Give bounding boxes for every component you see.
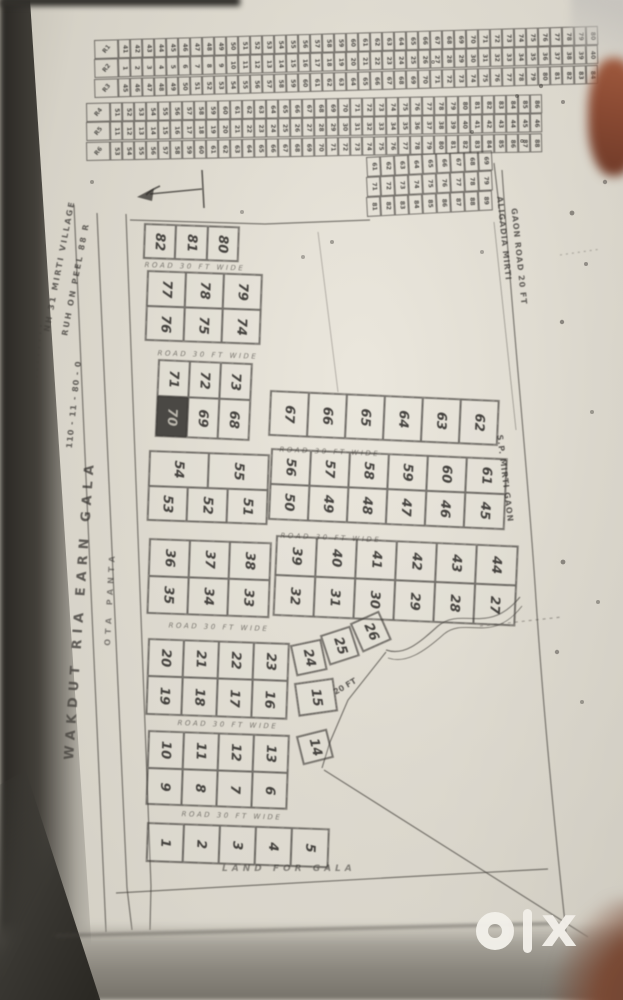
strip-cell: 51 <box>110 102 122 122</box>
strip-cell: 57 <box>262 74 275 94</box>
strip-cell: 66 <box>290 99 302 119</box>
strip-cell: 78 <box>514 67 527 87</box>
north-arrow-icon <box>137 170 204 208</box>
strip-cell: 22 <box>242 119 254 139</box>
strip-cell: 21 <box>230 119 242 139</box>
strip-cell: 69 <box>478 150 493 171</box>
plot-cell-22: 22 <box>218 641 254 679</box>
strip-cell: 86 <box>506 133 518 153</box>
strip-cell: 10 <box>226 55 239 75</box>
plot-cell-53: 53 <box>148 486 188 521</box>
strip-cell: 8 <box>202 56 215 76</box>
strip-cell: 69 <box>302 137 314 157</box>
strip-cell: 28 <box>314 118 326 138</box>
strip-cell: 78 <box>434 96 446 116</box>
strip-cell: 45 <box>118 78 131 98</box>
strip-cell: 79 <box>526 66 539 86</box>
plot-cell-31: 31 <box>314 577 356 619</box>
strip-cell: 15 <box>286 54 299 74</box>
strip-cell: 84 <box>506 95 518 115</box>
plot-cell-80: 80 <box>207 226 239 261</box>
strip-cell: 7 <box>190 56 203 76</box>
strip-cell: 36 <box>538 47 551 67</box>
strip-cell: 23 <box>382 51 395 71</box>
plot-cell-54: 54 <box>149 451 209 488</box>
plot-cell-82: 82 <box>144 224 176 259</box>
plot-cell-76: 76 <box>146 306 185 341</box>
strip-cell: 70 <box>418 69 431 89</box>
plot-block-block-74-79: 777879767574 <box>146 271 262 344</box>
strip-cell: 67 <box>278 138 290 158</box>
strip-cell: 5 <box>166 57 179 77</box>
strip-cell: 51 <box>190 76 203 96</box>
plot-block-block-33-38: 363738353433 <box>147 539 271 617</box>
strip-cell: 52 <box>202 75 215 95</box>
strip-cell: 67 <box>450 152 465 173</box>
strip-cell: 13 <box>262 54 275 74</box>
plot-cell-33: 33 <box>227 579 269 617</box>
strip-cell: 49 <box>214 36 227 56</box>
strip-cell: 64 <box>394 31 407 51</box>
plot-cell-66: 66 <box>307 393 347 439</box>
strip-row-label: R3 <box>94 78 119 98</box>
strip-cell: 35 <box>526 47 539 67</box>
strip-cell: 63 <box>254 100 266 120</box>
strip-cell: 55 <box>238 74 251 94</box>
strip-cell: 24 <box>394 51 407 71</box>
strip-cell: 80 <box>434 135 446 155</box>
plot-cell-69: 69 <box>187 397 220 438</box>
strip-cell: 33 <box>374 117 386 137</box>
plot-block-block-16-23: 2021222319181716 <box>146 639 289 719</box>
strip-cell: 46 <box>130 77 143 97</box>
strip-cell: 64 <box>346 71 359 91</box>
plot-cell-7: 7 <box>216 770 252 807</box>
plot-block-row-82-80: 828180 <box>144 224 239 261</box>
finger-blur-top <box>588 58 623 176</box>
strip-cell: 76 <box>436 173 451 194</box>
plot-cell-34: 34 <box>187 577 228 615</box>
strip-cell: 63 <box>334 72 347 92</box>
strip-cell: 80 <box>458 96 470 116</box>
plot-cell-9: 9 <box>146 768 182 805</box>
strip-cell: 65 <box>278 99 290 119</box>
strip-cell: 68 <box>464 151 479 172</box>
strip-cell: 76 <box>386 136 398 156</box>
strip-cell: 37 <box>422 116 434 136</box>
strip-cell: 87 <box>450 192 465 213</box>
strip-cell: 48 <box>202 37 215 57</box>
strip-cell: 60 <box>346 33 359 53</box>
strip-cell: 81 <box>470 95 482 115</box>
strip-cell: 79 <box>478 170 493 191</box>
plot-cell-72: 72 <box>188 361 221 398</box>
strip-cell: 21 <box>358 52 371 72</box>
strip-cell: 30 <box>466 49 479 69</box>
strip-cell: 11 <box>110 122 122 142</box>
strip-cell: 42 <box>130 39 143 59</box>
plot-block-plot-24: 24 <box>291 640 327 676</box>
strip-cell: 75 <box>422 173 437 194</box>
strip-cell: 85 <box>422 193 437 214</box>
photocopy-specks <box>0 0 2 2</box>
plot-cell-6: 6 <box>251 772 287 809</box>
plot-cell-45: 45 <box>464 492 505 529</box>
strip-cell: 64 <box>266 99 278 119</box>
strip-cell: 77 <box>550 27 563 47</box>
plot-cell-70: 70 <box>156 396 189 437</box>
strip-cell: 43 <box>494 114 506 134</box>
strip-cell: 30 <box>338 117 350 137</box>
strip-cell: 80 <box>538 66 551 86</box>
strip-cell: 9 <box>214 56 227 76</box>
plot-cell-50: 50 <box>269 484 309 521</box>
strip-cell: 78 <box>410 135 422 155</box>
strip-cell: 34 <box>514 47 527 67</box>
plot-cell-52: 52 <box>187 487 228 522</box>
strip-cell: 67 <box>302 99 314 119</box>
strip-cell: 65 <box>254 138 266 158</box>
strip-cell: 68 <box>394 70 407 90</box>
plot-cell-35: 35 <box>147 576 188 614</box>
plot-cell-78: 78 <box>185 272 224 308</box>
plot-cell-5: 5 <box>291 828 329 867</box>
plot-cell-73: 73 <box>219 363 252 400</box>
strip-cell: 86 <box>530 94 542 114</box>
strip-cell: 72 <box>442 69 455 89</box>
strip-cell: 79 <box>422 135 434 155</box>
plot-cell-65: 65 <box>345 394 385 440</box>
strip-cell: 46 <box>178 37 191 57</box>
strip-cell: 77 <box>398 135 410 155</box>
strip-cell: 35 <box>398 116 410 136</box>
strip-cell: 71 <box>430 69 443 89</box>
strip-cell: 73 <box>374 97 386 117</box>
strip-cell: 72 <box>490 29 503 49</box>
strip-cell: 77 <box>502 67 515 87</box>
strip-cell: 76 <box>538 27 551 47</box>
strip-cell: 74 <box>466 68 479 88</box>
strip-cell: 55 <box>134 140 146 160</box>
strip-cell: 71 <box>366 176 381 197</box>
strip-cell: 41 <box>470 115 482 135</box>
strip-row-label: R1 <box>94 39 119 59</box>
strip-cell: 78 <box>464 171 479 192</box>
strip-cell: 44 <box>154 38 167 58</box>
plot-cell-79: 79 <box>223 274 262 310</box>
strip-cell: 73 <box>454 68 467 88</box>
strip-cell: 32 <box>362 117 374 137</box>
strip-cell: 73 <box>350 136 362 156</box>
strip-cell: 62 <box>370 32 383 52</box>
strip-cell: 72 <box>362 97 374 117</box>
strip-cell: 79 <box>446 96 458 116</box>
plot-cell-1: 1 <box>147 823 184 862</box>
strip-cell: 74 <box>514 28 527 48</box>
strip-cell: 49 <box>166 76 179 96</box>
strip-cell: 83 <box>394 195 409 216</box>
strip-cell: 26 <box>418 50 431 70</box>
strip-cell: 58 <box>194 101 206 121</box>
strip-cell: 2 <box>130 58 143 78</box>
plot-block-row-1-5: 12345 <box>147 823 329 867</box>
strip-cell: 57 <box>158 140 170 160</box>
strip-cell: 75 <box>374 136 386 156</box>
strip-cell: 71 <box>350 98 362 118</box>
plot-block-block-51-55: 5455535251 <box>148 451 269 524</box>
plot-cell-24: 24 <box>291 640 327 676</box>
strip-cell: 38 <box>434 115 446 135</box>
plot-cell-77: 77 <box>147 271 186 307</box>
strip-cell: 14 <box>146 121 158 141</box>
strip-cell: 85 <box>494 134 506 154</box>
plot-cell-10: 10 <box>148 731 184 769</box>
strip-cell: 84 <box>408 194 423 215</box>
strip-cell: 45 <box>166 38 179 58</box>
strip-cell: 18 <box>194 120 206 140</box>
strip-cell: 52 <box>250 35 263 55</box>
strip-cell: 1 <box>118 58 131 78</box>
plot-cell-71: 71 <box>157 360 190 397</box>
plot-block-block-68-73: 717273706968 <box>156 360 252 440</box>
strip-cell: 83 <box>494 95 506 115</box>
strip-cell: 61 <box>206 139 218 159</box>
strip-cell: 24 <box>266 119 278 139</box>
strip-cell: 27 <box>302 118 314 138</box>
strip-cell: 48 <box>154 77 167 97</box>
plot-cell-21: 21 <box>183 640 219 678</box>
plot-cell-23: 23 <box>253 643 289 681</box>
strip-cell: 62 <box>242 100 254 120</box>
strip-cell: 66 <box>370 71 383 91</box>
strip-cell: 62 <box>380 156 395 177</box>
strip-cell: 36 <box>410 116 422 136</box>
strip-cell: 44 <box>506 114 518 134</box>
strip-cell: 61 <box>366 156 381 177</box>
strip-cell: 88 <box>464 191 479 212</box>
strip-cell: 62 <box>218 139 230 159</box>
strip-cell: 43 <box>142 38 155 58</box>
site-plan-drawing: R141424344454647484950515253545556575859… <box>0 0 623 1000</box>
plot-cell-38: 38 <box>229 542 271 580</box>
strip-cell: 87 <box>518 133 530 153</box>
strip-cell: 81 <box>550 66 563 86</box>
strip-cell: 61 <box>358 32 371 52</box>
strip-cell: 47 <box>142 77 155 97</box>
strip-cell: 37 <box>550 46 563 66</box>
strip-cell: 29 <box>454 49 467 69</box>
strip-cell: 45 <box>518 114 530 134</box>
strip-cell: 19 <box>334 52 347 72</box>
strip-cell: 74 <box>386 97 398 117</box>
plot-cell-16: 16 <box>251 680 287 719</box>
strip-cell: 71 <box>326 137 338 157</box>
plot-cell-37: 37 <box>189 540 230 578</box>
strip-cell: 59 <box>206 100 218 120</box>
strip-cell: 20 <box>346 52 359 72</box>
strip-cell: 22 <box>370 51 383 71</box>
strip-cell: 69 <box>454 30 467 50</box>
plot-cell-64: 64 <box>383 396 423 442</box>
strip-cell: 76 <box>410 97 422 117</box>
plot-cell-3: 3 <box>219 826 256 865</box>
strip-cell: 56 <box>170 101 182 121</box>
strip-cell: 67 <box>430 30 443 50</box>
strip-cell: 3 <box>142 58 155 78</box>
strip-cell: 39 <box>446 115 458 135</box>
strip-cell: 53 <box>262 35 275 55</box>
strip-cell: 61 <box>310 72 323 92</box>
strip-cell: 59 <box>286 73 299 93</box>
photo-edge-shadow-top <box>0 0 240 6</box>
strip-cell: 69 <box>406 70 419 90</box>
strip-cell: 81 <box>366 196 381 217</box>
strip-cell: 66 <box>266 138 278 158</box>
strip-cell: 65 <box>358 71 371 91</box>
strip-cell: 65 <box>422 153 437 174</box>
strip-row-label: R2 <box>94 59 119 79</box>
strip-cell: 57 <box>310 34 323 54</box>
strip-cell: 56 <box>250 74 263 94</box>
strip-row-label: R4 <box>86 103 110 123</box>
strip-cell: 65 <box>406 31 419 51</box>
strip-cell: 68 <box>442 30 455 50</box>
strip-cell: 89 <box>478 190 493 211</box>
strip-cell: 66 <box>418 31 431 51</box>
strip-row-label: R5 <box>86 122 110 142</box>
strip-cell: 88 <box>530 133 542 153</box>
plot-cell-17: 17 <box>216 678 252 717</box>
strip-cell: 11 <box>238 55 251 75</box>
strip-cell: 14 <box>274 54 287 74</box>
strip-cell: 34 <box>386 116 398 136</box>
strip-cell: 64 <box>408 154 423 175</box>
plot-cell-68: 68 <box>218 399 251 440</box>
strip-cell: 61 <box>230 100 242 120</box>
strip-cell: 31 <box>350 117 362 137</box>
strip-cell: 51 <box>238 36 251 56</box>
plot-cell-48: 48 <box>347 487 387 524</box>
strip-cell: 56 <box>146 140 158 160</box>
strip-cell: 13 <box>134 121 146 141</box>
strip-cell: 62 <box>322 72 335 92</box>
strip-cell: 53 <box>134 102 146 122</box>
strip-cell: 70 <box>314 137 326 157</box>
plot-cell-81: 81 <box>175 225 208 260</box>
strip-cell: 73 <box>502 28 515 48</box>
plot-cell-18: 18 <box>181 677 217 716</box>
strip-cell: 69 <box>326 98 338 118</box>
olx-o-glyph <box>476 912 514 950</box>
strip-cell: 53 <box>110 141 122 161</box>
strip-cell: 82 <box>482 95 494 115</box>
plot-cell-29: 29 <box>393 580 435 622</box>
strip-cell: 41 <box>118 39 131 59</box>
plot-cell-63: 63 <box>421 398 461 444</box>
strip-cell: 54 <box>146 102 158 122</box>
strip-cell: 23 <box>254 119 266 139</box>
strip-cell: 74 <box>362 136 374 156</box>
strip-cell: 52 <box>122 102 134 122</box>
strip-cell: 50 <box>178 76 191 96</box>
strip-cell: 82 <box>380 196 395 217</box>
strip-cell: 70 <box>466 29 479 49</box>
strip-cell: 57 <box>182 101 194 121</box>
strip-cell: 53 <box>214 75 227 95</box>
strip-cell: 72 <box>338 137 350 157</box>
strip-cell: 75 <box>398 97 410 117</box>
strip-cell: 27 <box>430 50 443 70</box>
strip-cell: 33 <box>502 48 515 68</box>
strip-cell: 20 <box>218 120 230 140</box>
strip-cell: 6 <box>178 57 191 77</box>
olx-watermark: x <box>476 903 577 959</box>
strip-cell: 12 <box>122 121 134 141</box>
plot-cell-28: 28 <box>433 582 475 624</box>
strip-cell: 18 <box>322 53 335 73</box>
strip-cell: 76 <box>490 67 503 87</box>
plot-cell-62: 62 <box>459 399 499 445</box>
strip-cell: 55 <box>158 101 170 121</box>
strip-cell: 28 <box>442 49 455 69</box>
strip-cell: 16 <box>170 120 182 140</box>
strip-cell: 29 <box>326 117 338 137</box>
olx-x-glyph: x <box>541 900 577 956</box>
bottom-land-note: LAND FOR GALA <box>222 864 372 874</box>
strip-cell: 25 <box>278 118 290 138</box>
strip-row-label: R6 <box>86 141 110 161</box>
strip-cell: 56 <box>298 34 311 54</box>
strip-cell: 70 <box>338 98 350 118</box>
plot-cell-51: 51 <box>227 489 268 524</box>
strip-cell: 31 <box>478 48 491 68</box>
strip-cell: 46 <box>530 114 542 134</box>
strip-cell: 74 <box>408 174 423 195</box>
strip-cell: 17 <box>310 53 323 73</box>
strip-cell: 19 <box>206 120 218 140</box>
strip-cell: 68 <box>290 137 302 157</box>
strip-cell: 60 <box>298 73 311 93</box>
strip-cell: 55 <box>286 34 299 54</box>
strip-cell: 25 <box>406 50 419 70</box>
plot-cell-74: 74 <box>222 309 261 344</box>
strip-cell: 73 <box>394 175 409 196</box>
strip-cell: 58 <box>322 33 335 53</box>
plot-cell-19: 19 <box>146 676 182 715</box>
strip-cell: 40 <box>458 115 470 135</box>
strip-cell: 58 <box>170 140 182 160</box>
strip-cell: 58 <box>274 73 287 93</box>
plot-cell-75: 75 <box>184 307 223 342</box>
plot-cell-55: 55 <box>208 453 269 490</box>
plot-cell-27: 27 <box>473 584 516 626</box>
strip-cell: 63 <box>394 155 409 176</box>
plot-block-block-6-13: 101112139876 <box>146 731 288 809</box>
strip-cell: 60 <box>218 100 230 120</box>
strip-cell: 50 <box>226 36 239 56</box>
plot-cell-20: 20 <box>148 639 184 677</box>
strip-cell: 67 <box>382 70 395 90</box>
plot-map-photo: R141424344454647484950515253545556575859… <box>0 0 623 1000</box>
plot-cell-36: 36 <box>149 539 190 577</box>
strip-cell: 77 <box>450 172 465 193</box>
strip-cell: 63 <box>382 32 395 52</box>
strip-cell: 17 <box>182 120 194 140</box>
strip-cell: 32 <box>490 48 503 68</box>
olx-bar-glyph <box>523 909 532 953</box>
plot-cell-11: 11 <box>183 732 219 770</box>
strip-cell: 66 <box>436 153 451 174</box>
